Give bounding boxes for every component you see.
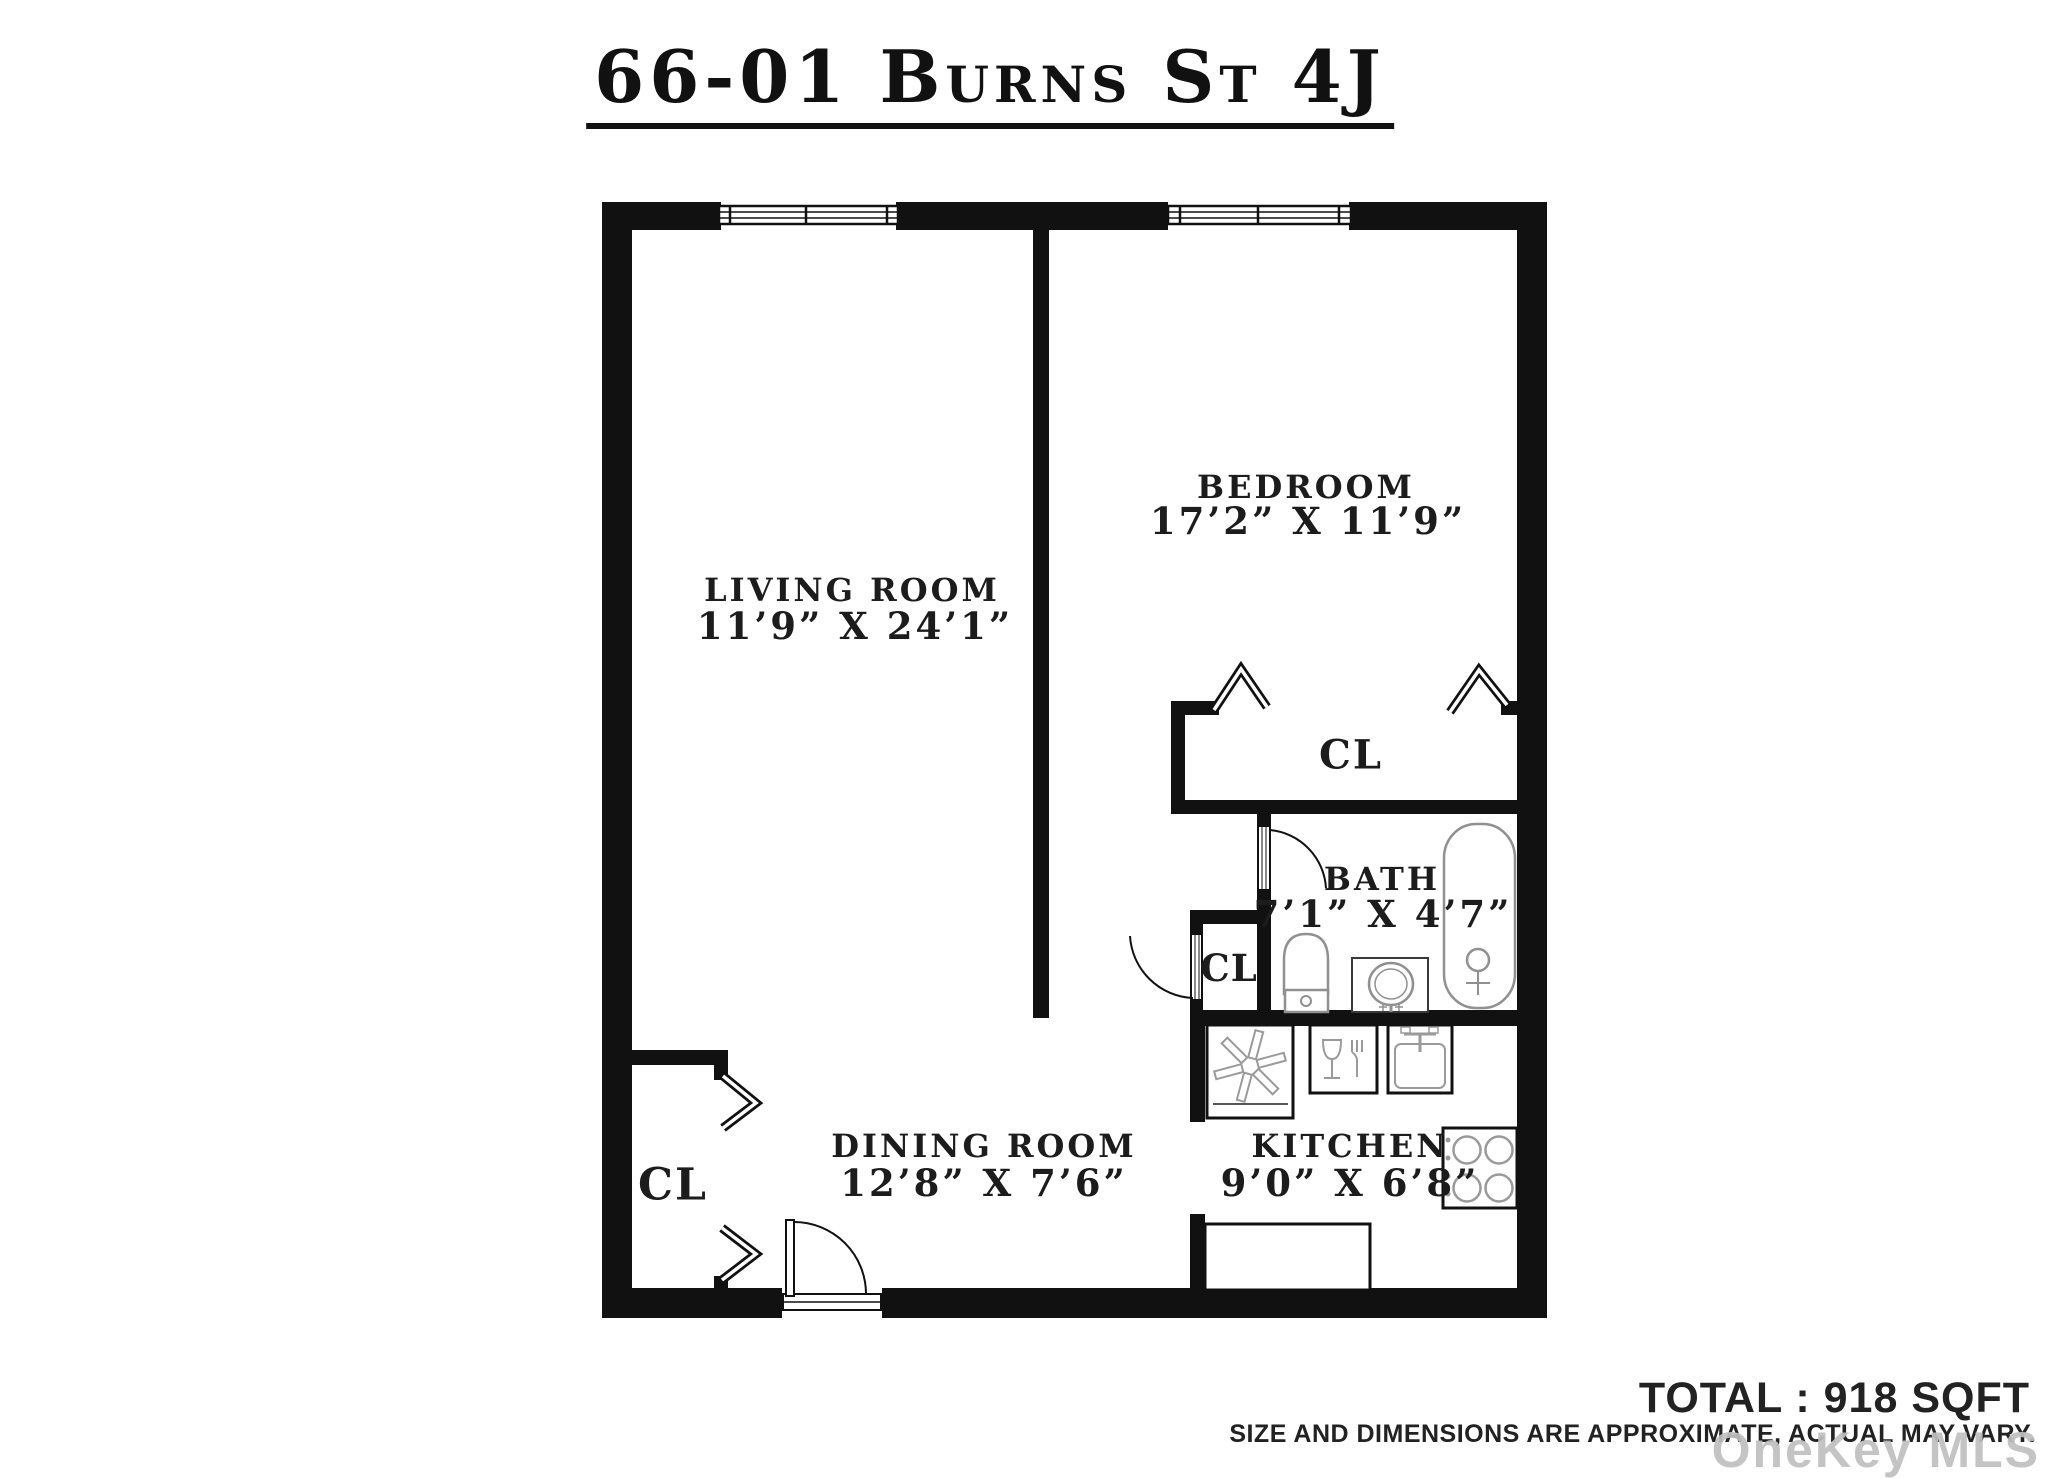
wall-right: [1517, 202, 1547, 1318]
bath-sink-icon: [1352, 958, 1428, 1012]
hall-closet-label: CL: [1200, 946, 1257, 990]
bath-dims: 7’1” X 4’7”: [1254, 892, 1513, 936]
window-icon-living: [719, 206, 898, 224]
toilet-icon: [1284, 934, 1328, 1012]
hall-closet-door-swing-icon: [1130, 934, 1202, 1000]
entry-closet-label: CL: [638, 1160, 708, 1211]
floorplan-drawing: [0, 0, 2048, 1448]
wall-hall-closet-left-upper: [1190, 910, 1203, 934]
living-room-dims: 11’9” X 24’1”: [697, 604, 1013, 648]
wall-left: [602, 202, 632, 1318]
refrigerator-fan-icon: [1207, 1025, 1293, 1118]
wall-kitchen-left-upper: [1190, 1010, 1205, 1122]
floorplan-title: 66-01 Burns St 4J: [586, 34, 1394, 129]
wall-top-a: [602, 202, 721, 230]
wall-kitchen-left-lower: [1190, 1214, 1205, 1292]
wall-closet-bottom: [1171, 800, 1523, 814]
wall-hall-closet-right: [1257, 924, 1271, 1014]
bedroom-dims: 17’2” X 11’9”: [1150, 499, 1466, 543]
wall-living-bedroom-divider: [1033, 230, 1049, 1018]
dishwasher-icon: [1310, 1025, 1377, 1093]
dining-room-label: DINING ROOM: [831, 1127, 1136, 1165]
kitchen-label: KITCHEN: [1252, 1127, 1449, 1165]
wall-bottom-b: [882, 1288, 1547, 1318]
floorplan-page: { "title": "66-01 Burns St 4J", "rooms":…: [0, 0, 2048, 1448]
kitchen-dims: 9’0” X 6’8”: [1221, 1161, 1480, 1205]
bedroom-closet-label: CL: [1319, 732, 1383, 779]
counter-icon: [1205, 1224, 1370, 1290]
wall-top-b: [896, 202, 1168, 230]
window-icon-bedroom: [1168, 206, 1351, 224]
total-sqft-text: TOTAL : 918 SQFT: [1639, 1374, 2030, 1423]
wall-top-c: [1349, 202, 1547, 230]
kitchen-sink-icon: [1388, 1025, 1452, 1093]
bath-door-swing-icon: [1258, 826, 1326, 890]
wall-bottom-a: [602, 1288, 782, 1318]
mls-watermark: OneKey MLS: [1712, 1421, 2040, 1479]
dining-room-dims: 12’8” X 7’6”: [840, 1161, 1128, 1205]
wall-bath-left-upper: [1257, 800, 1271, 826]
entry-door-swing-icon: [783, 1220, 881, 1310]
wall-closet-left: [1171, 701, 1185, 814]
wall-entry-closet-top: [602, 1050, 728, 1065]
